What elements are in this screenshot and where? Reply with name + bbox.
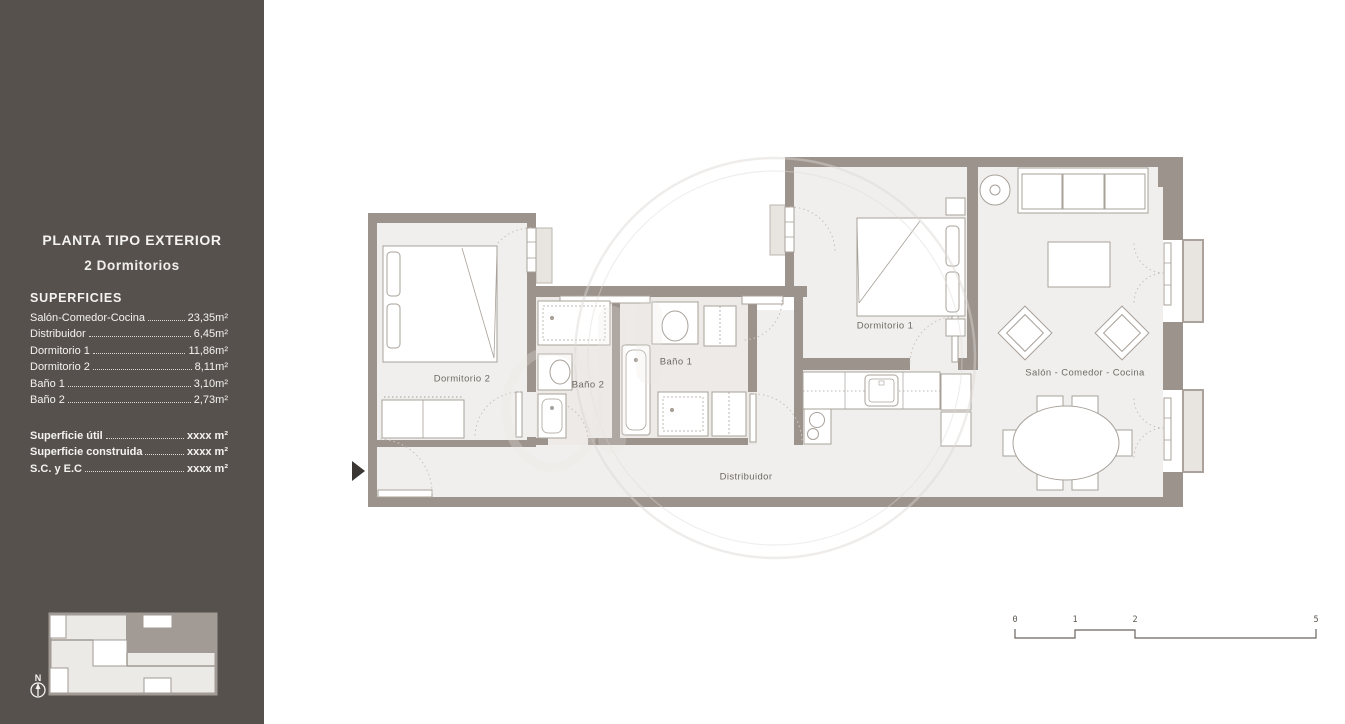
mini-site-plan (50, 614, 216, 694)
entrance-arrow-icon (352, 461, 365, 481)
room-label-bano2: Baño 2 (572, 380, 605, 391)
window-sill-dormitorio1 (770, 205, 786, 255)
washbasin-cabinet-bano1 (712, 392, 746, 436)
scale-bar (1015, 629, 1316, 638)
kitchen-counter (803, 372, 940, 409)
room-label-distribuidor: Distribuidor (720, 472, 773, 483)
balcony-upper (1183, 240, 1203, 322)
toilet-bano2 (538, 354, 572, 390)
balcony-door-upper (1164, 243, 1171, 305)
balcony-lower (1183, 390, 1203, 472)
dining-table (1013, 406, 1119, 480)
entrance-door-leaf (378, 490, 432, 497)
kitchen-hob (804, 409, 831, 444)
window-dormitorio2 (527, 228, 536, 272)
door-leaf-bano1 (750, 394, 756, 442)
room-label-dormitorio1: Dormitorio 1 (857, 321, 914, 332)
window-sill-dormitorio2 (536, 228, 552, 283)
cabinet-bano1 (704, 306, 736, 346)
room-label-salon: Salón - Comedor - Cocina (1025, 368, 1144, 379)
washbasin-bano2 (538, 394, 566, 438)
compass-n-label: N (35, 673, 42, 683)
wardrobe-dormitorio2 (382, 397, 464, 438)
window-dormitorio1 (785, 207, 794, 252)
compass: N (31, 673, 45, 697)
bed-dormitorio2 (383, 246, 497, 362)
shower-bano1 (658, 392, 708, 436)
floorplan-page: PLANTA TIPO EXTERIOR 2 Dormitorios SUPER… (0, 0, 1345, 724)
door-leaf-dormitorio2 (516, 392, 522, 437)
scale-tick-1: 1 (1072, 615, 1077, 625)
coffee-table (1048, 242, 1110, 287)
balcony-door-lower (1164, 398, 1171, 460)
window-vestibule (742, 296, 783, 304)
scale-tick-5: 5 (1313, 615, 1318, 625)
scale-tick-2: 2 (1132, 615, 1137, 625)
scale-tick-0: 0 (1012, 615, 1017, 625)
floor-lamp (980, 175, 1010, 205)
room-label-bano1: Baño 1 (660, 357, 693, 368)
bed-dormitorio1 (857, 198, 965, 336)
sofa (1018, 168, 1148, 213)
room-label-dormitorio2: Dormitorio 2 (434, 374, 491, 385)
